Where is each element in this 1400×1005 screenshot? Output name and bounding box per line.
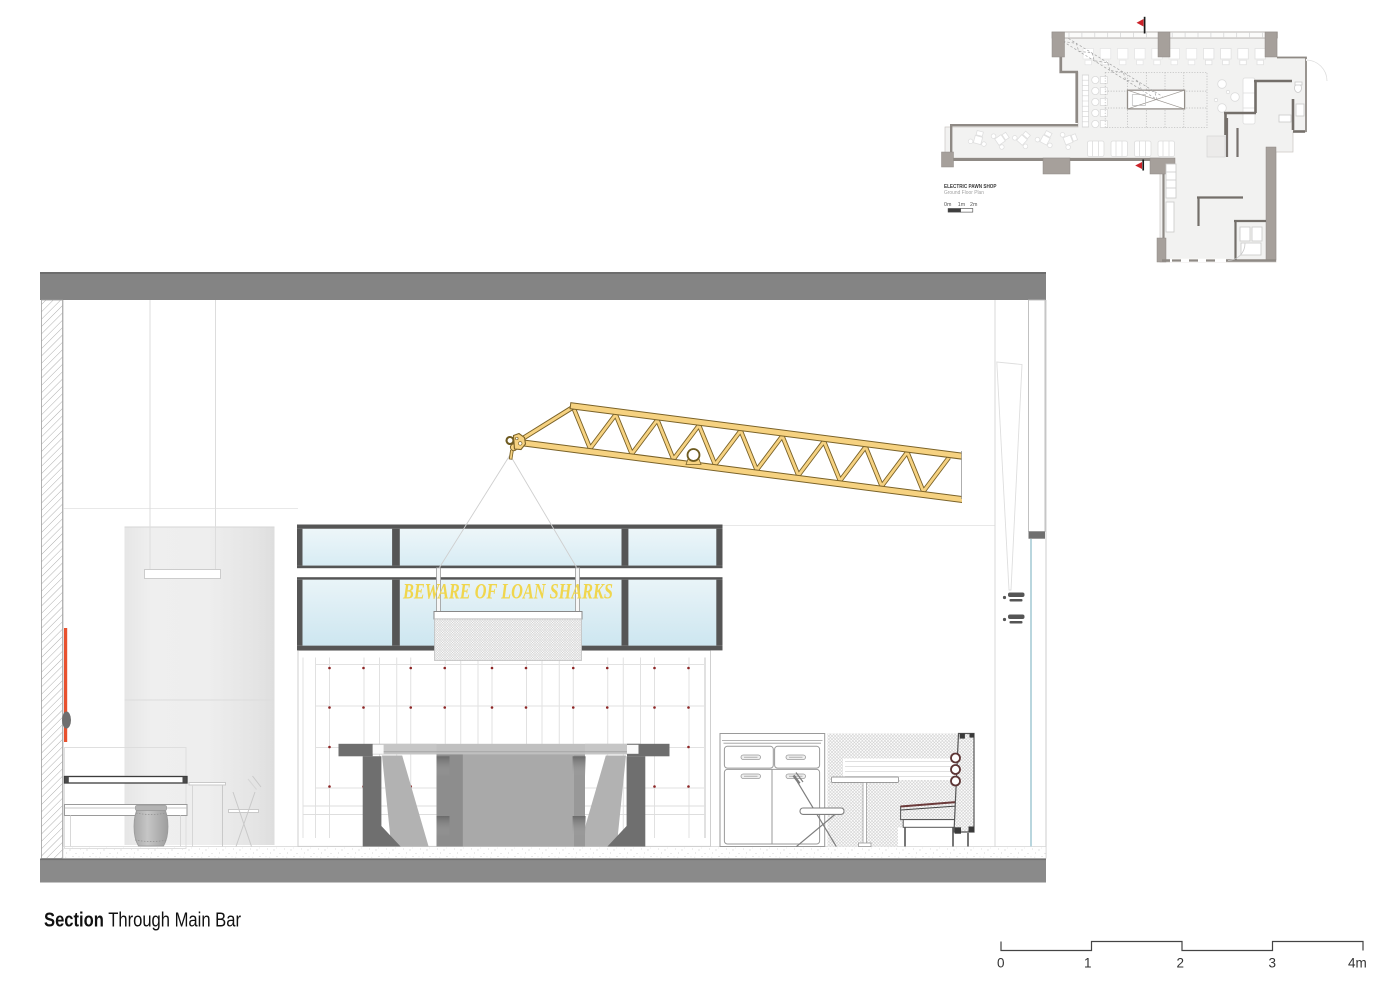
svg-text:0: 0 — [997, 956, 1005, 971]
svg-text:3: 3 — [1269, 956, 1277, 971]
svg-text:4m: 4m — [1348, 956, 1367, 971]
svg-text:2: 2 — [1177, 956, 1185, 971]
svg-text:1m: 1m — [958, 202, 966, 208]
svg-text:2m: 2m — [970, 202, 978, 208]
svg-text:Section Through Main Bar: Section Through Main Bar — [44, 909, 241, 932]
svg-text:Ground Floor Plan: Ground Floor Plan — [944, 190, 984, 196]
svg-text:1: 1 — [1084, 956, 1092, 971]
svg-text:BEWARE OF LOAN SHARKS: BEWARE OF LOAN SHARKS — [402, 579, 613, 604]
svg-text:0m: 0m — [944, 202, 952, 208]
